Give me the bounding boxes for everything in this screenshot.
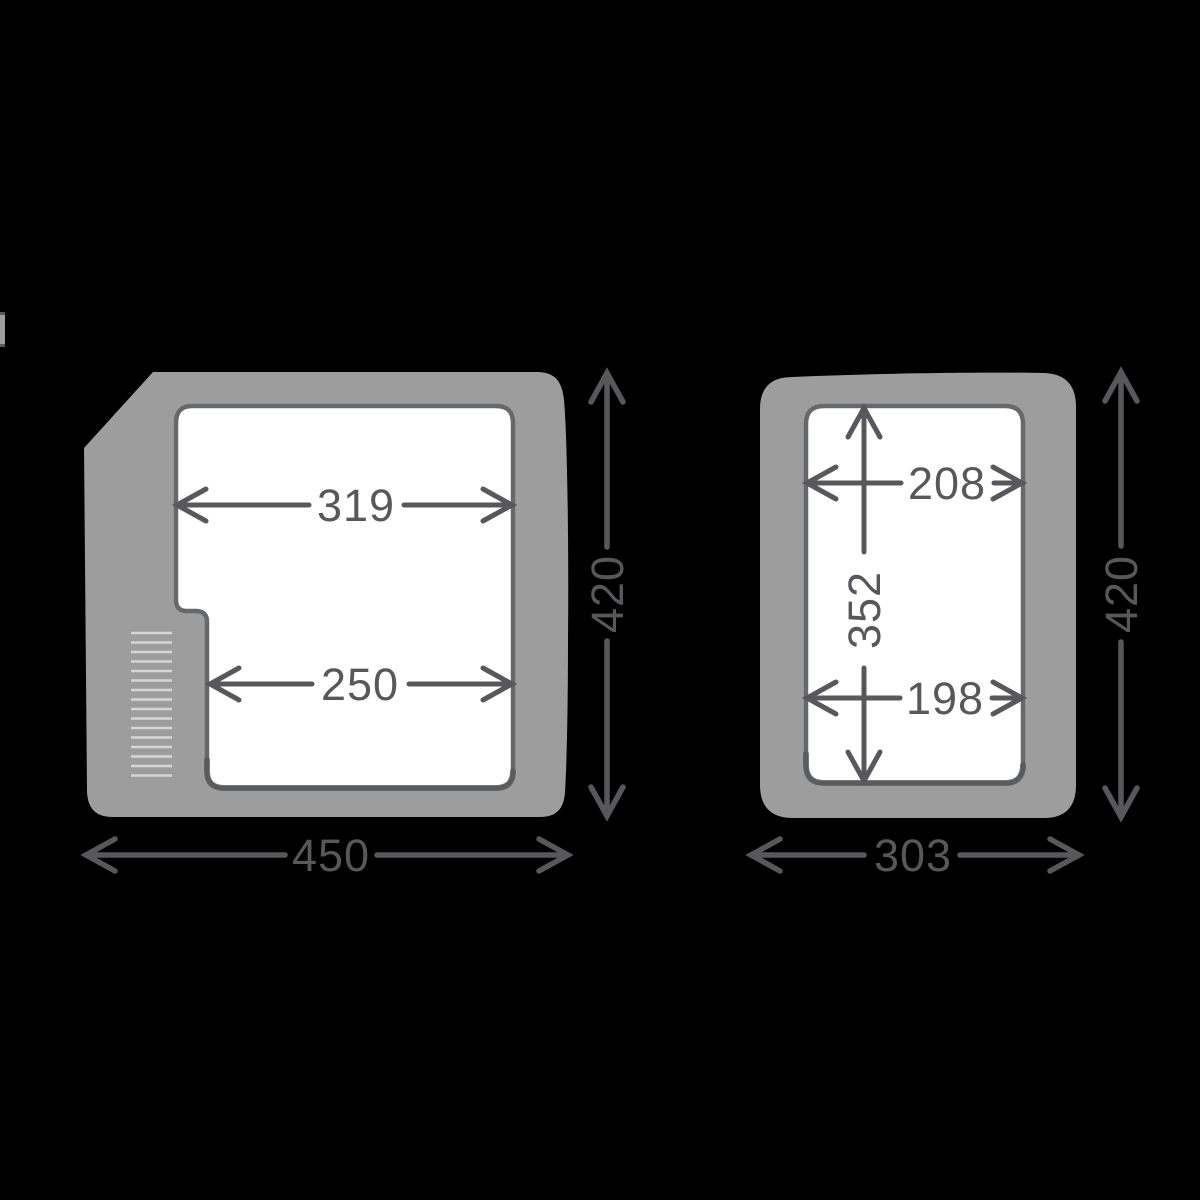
dim-label-front-bottom-width: 198 (906, 673, 984, 724)
dimension-diagram-page: 319 250 420 450 (0, 0, 1200, 1200)
dim-label-front-height: 420 (1096, 555, 1147, 633)
dim-label-side-width: 450 (292, 830, 370, 881)
dim-label-front-inner-height: 352 (839, 571, 890, 649)
dim-label-side-top-width: 319 (317, 480, 395, 531)
dim-label-front-top-width: 208 (908, 458, 986, 509)
edge-artifact (0, 314, 5, 346)
side-view-cavity (176, 406, 513, 788)
dim-label-side-bottom-width: 250 (321, 659, 399, 710)
edge-artifact-cap-bottom (0, 344, 5, 347)
dimension-diagram: 319 250 420 450 (0, 0, 1200, 1200)
dim-label-front-width: 303 (874, 830, 952, 881)
side-view-figure: 319 250 420 450 (84, 372, 633, 881)
edge-artifact-cap-top (0, 312, 5, 315)
dim-label-side-height: 420 (582, 555, 633, 633)
